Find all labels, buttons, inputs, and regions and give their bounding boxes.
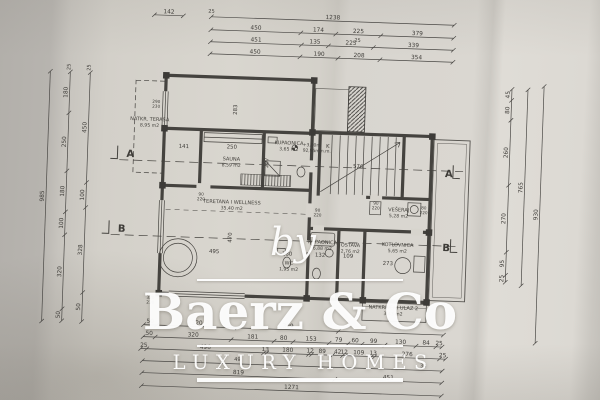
dim-label-extra: 25 (354, 38, 361, 44)
inline-dimension: 250 (227, 144, 238, 150)
watermark-by: by (0, 220, 586, 264)
dim-label: 354 (411, 55, 423, 61)
dim-label: 100 (80, 189, 86, 201)
section-letter: A (126, 149, 134, 160)
dim-label: 250 (62, 136, 68, 148)
dim-label: 320 (57, 266, 63, 278)
dim-label: 25 (435, 341, 443, 347)
dim-label: 930 (533, 209, 539, 221)
dim-label: 174 (313, 28, 325, 34)
floorplan-photo: 1421238450174225379451135225339450190208… (0, 0, 600, 400)
watermark-brand: Baerz & Co (0, 282, 600, 341)
dim-label: 765 (518, 182, 524, 194)
dim-label-extra: 25 (208, 9, 215, 15)
door-size-label: 90220 (197, 191, 206, 201)
dim-label: 190 (313, 52, 325, 58)
dim-label: 450 (250, 25, 262, 31)
inline-dimension: 207 (264, 158, 270, 169)
door-size-label: 80220 (420, 205, 429, 215)
inline-dimension: 576 (353, 164, 364, 170)
watermark-rule-middle (197, 345, 403, 347)
dim-label: 1238 (325, 15, 340, 22)
dim-label-extra: 25 (86, 64, 92, 71)
dim-label: 80 (505, 106, 511, 114)
dim-label: 225 (353, 29, 365, 35)
dim-label: 84 (422, 341, 430, 347)
windows-layer (156, 91, 252, 298)
room-label: KUPAONICA3,65 m2 (274, 140, 304, 153)
dim-label: 339 (408, 43, 420, 49)
dim-label: 25 (140, 343, 148, 349)
dim-label: 260 (504, 147, 510, 159)
door-size-label: 90220 (313, 207, 322, 217)
dim-label: 450 (82, 122, 88, 134)
watermark-rule-top (197, 279, 403, 281)
dim-label: 451 (250, 37, 262, 43)
dim-label: 180 (63, 86, 69, 98)
door-size-label: 290230 (152, 99, 161, 109)
dim-label: 985 (40, 190, 46, 202)
elevation-datum: 92,95m n.m. (303, 148, 331, 155)
room-label: TERETANA I WELLNESS35,40 m2 (202, 199, 261, 213)
dim-label: 1271 (284, 385, 299, 392)
watermark-rule-bottom (197, 378, 403, 382)
section-letter: A (445, 169, 453, 180)
dim-label-extra: 25 (66, 64, 72, 71)
dim-label: 135 (309, 39, 321, 45)
dim-label: 180 (60, 185, 66, 197)
room-label: SAUNA8,59 m2 (222, 156, 242, 169)
dim-label: 45 (506, 91, 512, 99)
elevation-value: +3,00m (303, 142, 321, 149)
dim-label: 208 (353, 53, 365, 59)
watermark-tagline: LUXURY HOMES (0, 351, 600, 374)
room-label: VEŠERAJ5,28 m2 (388, 206, 410, 220)
dim-label: 450 (249, 49, 261, 55)
dim-label: 379 (412, 31, 424, 37)
inline-dimension: 283 (233, 104, 239, 115)
inline-dimension: 141 (179, 144, 190, 150)
dim-label: 142 (163, 9, 175, 15)
